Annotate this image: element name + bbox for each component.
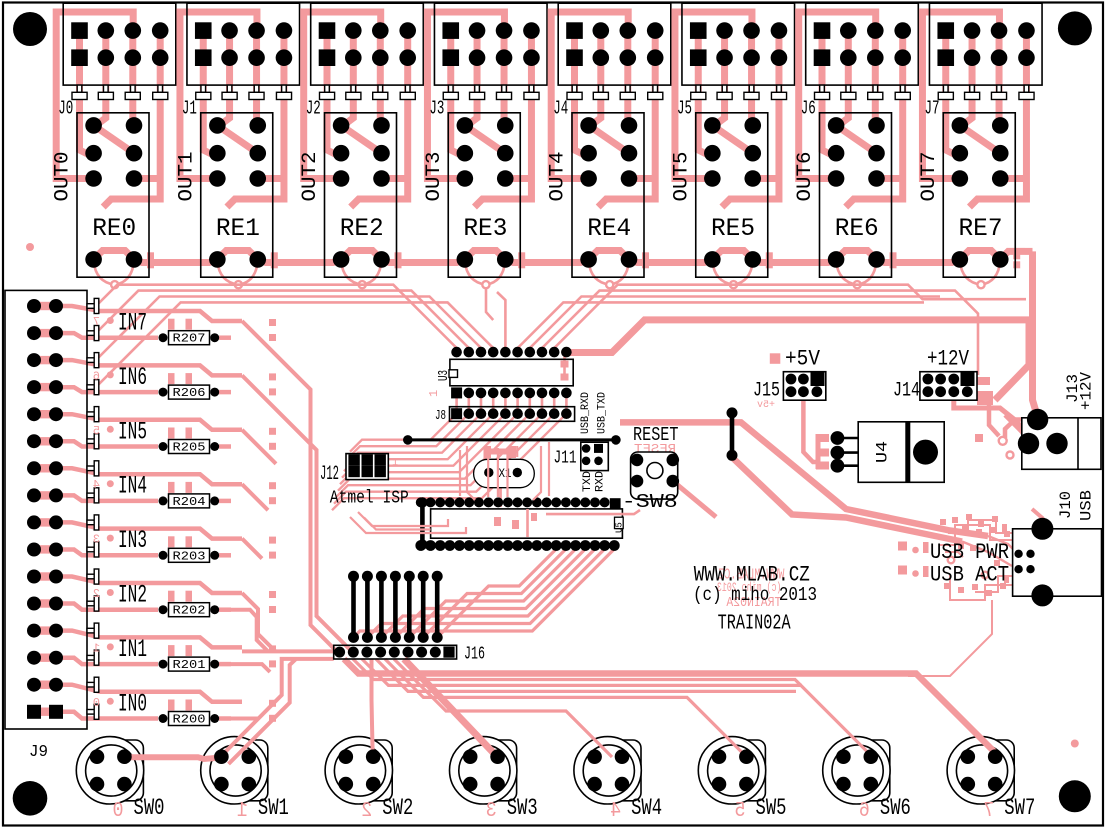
svg-text:-SW8: -SW8 [622,491,678,513]
svg-text:TRAIN02A: TRAIN02A [718,612,791,635]
svg-text:USB_RXD: USB_RXD [580,392,592,434]
svg-text:SW7: SW7 [1004,795,1035,821]
svg-text:SW1: SW1 [258,795,289,821]
svg-text:IN0: IN0 [118,689,147,718]
svg-text:U5: U5 [615,522,625,533]
svg-text:OUT2: OUT2 [299,152,322,202]
svg-text:IN7: IN7 [118,309,147,338]
svg-text:RE0: RE0 [92,214,136,243]
svg-text:5: 5 [93,424,100,438]
svg-text:J14: J14 [893,380,920,403]
svg-text:J10: J10 [1057,491,1075,519]
svg-text:RE3: RE3 [463,214,507,243]
svg-text:R203: R203 [173,550,206,563]
svg-text:3: 3 [93,533,100,547]
svg-text:USB PWR: USB PWR [930,540,1009,565]
svg-text:J0: J0 [58,98,73,120]
svg-text:OUT7: OUT7 [918,152,941,202]
svg-text:OUT3: OUT3 [423,152,446,202]
svg-text:OUT4: OUT4 [547,152,570,202]
svg-text:R202: R202 [173,605,206,618]
svg-text:2: 2 [93,587,100,601]
svg-text:RXD: RXD [595,471,607,492]
svg-text:R201: R201 [173,659,206,672]
svg-text:J4: J4 [553,98,568,120]
svg-text:RE2: RE2 [340,214,384,243]
svg-text:J16: J16 [464,645,485,665]
svg-text:RE6: RE6 [835,214,879,243]
svg-text:J12: J12 [320,463,339,486]
svg-text:J2: J2 [306,98,321,120]
svg-text:1: 1 [392,458,398,469]
svg-text:+12V: +12V [1078,372,1096,410]
svg-text:R206: R206 [173,387,206,400]
svg-text:J6: J6 [801,98,816,120]
svg-text:J3: J3 [429,98,444,120]
svg-text:RE5: RE5 [711,214,755,243]
svg-text:1: 1 [237,800,248,823]
svg-text:OUT5: OUT5 [671,152,694,202]
svg-text:1: 1 [427,390,441,397]
svg-text:RE4: RE4 [587,214,631,243]
svg-text:X1: X1 [499,466,512,481]
svg-text:IN1: IN1 [118,635,147,664]
svg-text:1: 1 [93,641,100,655]
svg-text:Atmel ISP: Atmel ISP [330,488,409,509]
svg-text:2: 2 [361,800,372,823]
svg-text:RE7: RE7 [959,214,1003,243]
svg-text:0: 0 [93,696,100,710]
svg-text:OUT6: OUT6 [794,152,817,202]
svg-text:SW4: SW4 [631,795,662,821]
svg-text:SW2: SW2 [382,795,413,821]
svg-text:USB ACT: USB ACT [930,563,1009,588]
svg-text:IN3: IN3 [118,526,147,555]
svg-text:SW6: SW6 [880,795,911,821]
svg-text:J1: J1 [182,98,197,120]
svg-text:R205: R205 [173,442,206,455]
svg-text:3: 3 [486,800,497,823]
svg-text:IN6: IN6 [118,363,147,392]
svg-text:6: 6 [93,369,100,383]
svg-text:TXD: TXD [582,471,594,492]
svg-text:USB: USB [1078,490,1096,521]
svg-text:U3: U3 [436,370,452,381]
svg-text:USB_TXD: USB_TXD [597,392,609,434]
svg-text:R204: R204 [173,496,206,509]
svg-text:OUT0: OUT0 [52,152,75,202]
svg-text:+5V: +5V [785,347,821,372]
svg-text:J9: J9 [29,743,48,762]
svg-text:4: 4 [610,800,621,823]
svg-text:4: 4 [93,478,100,492]
svg-text:5: 5 [735,800,746,823]
svg-text:7: 7 [93,315,100,329]
svg-text:R200: R200 [173,714,206,727]
svg-text:SW0: SW0 [134,795,165,821]
svg-text:IN4: IN4 [118,472,147,501]
svg-text:OUT1: OUT1 [175,152,198,202]
svg-text:SW3: SW3 [507,795,538,821]
svg-text:7: 7 [983,800,994,823]
svg-text:IN5: IN5 [118,417,147,446]
svg-text:0: 0 [113,800,124,823]
svg-text:+12V: +12V [927,347,970,372]
svg-text:J8: J8 [435,408,446,424]
svg-text:SW5: SW5 [756,795,787,821]
svg-text:J7: J7 [925,98,940,120]
svg-text:J5: J5 [677,98,692,120]
svg-text:(c) miho 2013: (c) miho 2013 [693,584,817,606]
svg-text:J11: J11 [554,449,577,469]
svg-text:IN2: IN2 [118,581,147,610]
svg-text:+5v: +5v [757,400,775,411]
svg-text:RE1: RE1 [216,214,260,243]
svg-text:R207: R207 [173,333,206,346]
svg-text:U4: U4 [874,441,892,463]
svg-text:6: 6 [859,800,870,823]
